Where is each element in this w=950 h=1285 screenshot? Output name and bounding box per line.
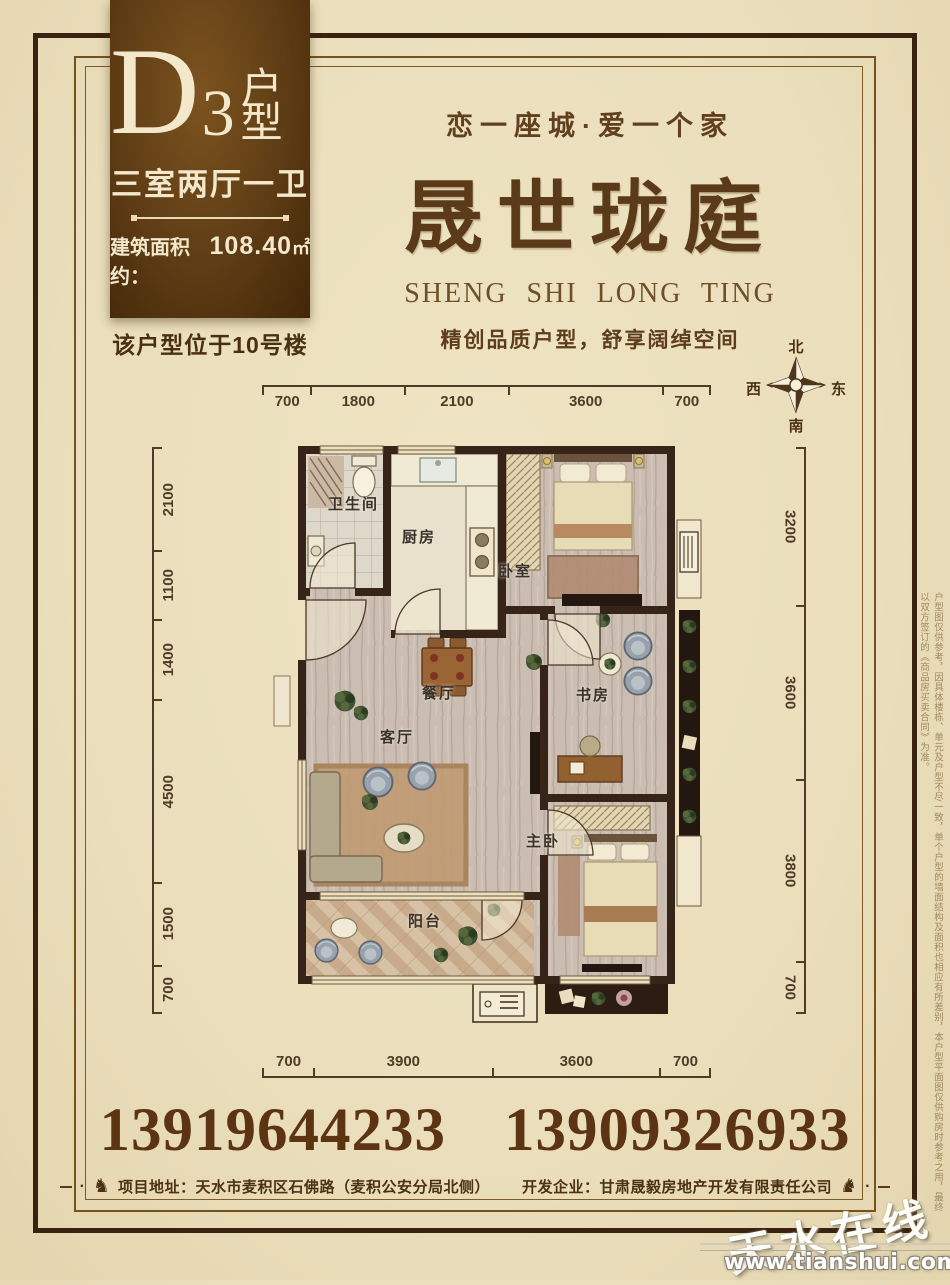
dimension-value: 1400 xyxy=(160,643,177,676)
dimension-value: 700 xyxy=(160,977,177,1002)
dimension-value: 1500 xyxy=(160,907,177,940)
dimension-segment: 3600 xyxy=(776,606,804,780)
brand-name: 晟世珑庭 xyxy=(350,153,830,268)
dimension-segment: 2100 xyxy=(405,387,509,415)
dimension-segment: 1800 xyxy=(311,387,405,415)
unit-type-card: D 3 户型 三室两厅一卫 建筑面积约： 108.40 ㎡ xyxy=(110,0,310,318)
room-label-bedroom: 卧室 xyxy=(498,560,532,581)
footer-left-dot: · xyxy=(80,1178,85,1196)
dimension-segment: 4500 xyxy=(154,700,182,883)
unit-area-unit: ㎡ xyxy=(292,234,310,260)
side-disclaimer: 户型图仅供参考，因具体楼栋、单元及户型不尽一致，单个户型的墙面结构及面积也相应有… xyxy=(916,592,944,1212)
brand-block: 恋一座城·爱一个家 晟世珑庭 SHENG SHI LONG TING 精创品质户… xyxy=(350,104,830,354)
dimension-segment: 1500 xyxy=(154,883,182,966)
developer-label: 开发企业： xyxy=(522,1179,600,1196)
dimension-value: 3600 xyxy=(569,393,602,410)
horse-ornament-right-icon: ♞ xyxy=(840,1177,857,1196)
brand-tagline: 恋一座城·爱一个家 xyxy=(350,104,830,143)
horse-ornament-left-icon: ♞ xyxy=(93,1177,110,1196)
unit-area-label: 建筑面积约： xyxy=(110,231,210,289)
dimension-row-bottom: 70039003600700 xyxy=(263,1048,711,1078)
room-label-dining: 餐厅 xyxy=(422,682,456,703)
address-label: 项目地址： xyxy=(118,1179,196,1196)
footer-right-rule xyxy=(878,1186,890,1188)
unit-type-suffix: 户型 xyxy=(241,72,310,139)
dimension-segment: 700 xyxy=(263,1048,314,1076)
compass-west-label: 西 xyxy=(746,378,761,399)
dimension-segment: 2100 xyxy=(154,448,182,551)
dimension-value: 2100 xyxy=(440,393,473,410)
phone-number-1: 13919644233 xyxy=(100,1096,447,1166)
dimension-value: 3900 xyxy=(387,1053,420,1070)
unit-card-divider xyxy=(131,217,289,219)
dimension-row-top: 700180021003600700 xyxy=(263,385,711,415)
footer-text: 项目地址：天水市麦积区石佛路（麦积公安分局北侧）开发企业：甘肃晟毅房地产开发有限… xyxy=(118,1176,832,1197)
unit-area: 建筑面积约： 108.40 ㎡ xyxy=(110,231,310,289)
room-label-living: 客厅 xyxy=(380,726,414,747)
room-label-study: 书房 xyxy=(576,684,610,705)
footer-info: · ♞ 项目地址：天水市麦积区石佛路（麦积公安分局北侧）开发企业：甘肃晟毅房地产… xyxy=(60,1176,890,1197)
dimension-value: 3600 xyxy=(782,676,799,709)
dimension-segment: 3800 xyxy=(776,780,804,962)
compass-star-icon xyxy=(766,355,826,415)
dimension-value: 3200 xyxy=(782,510,799,543)
dimension-segment: 700 xyxy=(663,387,711,415)
dimension-value: 700 xyxy=(674,393,699,410)
unit-type-number: 3 xyxy=(202,88,235,141)
room-label-balcony: 阳台 xyxy=(408,910,442,931)
floor-plan: 卫生间 厨房 卧室 餐厅 书房 客厅 主卧 阳台 xyxy=(252,436,702,1036)
brand-name-en: SHENG SHI LONG TING xyxy=(350,278,830,310)
unit-type-letter: D xyxy=(110,42,200,141)
dimension-value: 700 xyxy=(275,393,300,410)
developer-value: 甘肃晟毅房地产开发有限责任公司 xyxy=(600,1179,833,1196)
contact-phones: 13919644233 13909326933 xyxy=(60,1096,890,1166)
dimension-value: 700 xyxy=(673,1053,698,1070)
room-label-kitchen: 厨房 xyxy=(402,526,436,547)
compass-north-label: 北 xyxy=(744,336,848,357)
building-location-note: 该户型位于10号楼 xyxy=(100,326,320,360)
dimension-segment: 700 xyxy=(263,387,311,415)
dimension-value: 700 xyxy=(276,1053,301,1070)
compass-south-label: 南 xyxy=(744,415,848,436)
phone-number-2: 13909326933 xyxy=(504,1096,851,1166)
dimension-value: 3600 xyxy=(560,1053,593,1070)
dimension-segment: 3200 xyxy=(776,448,804,606)
dimension-value: 1800 xyxy=(342,393,375,410)
dimension-segment: 700 xyxy=(776,962,804,1014)
unit-area-value: 108.40 xyxy=(210,232,292,261)
dimension-value: 4500 xyxy=(160,775,177,808)
watermark-site-url: www.tianshui.com.cn xyxy=(724,1250,950,1275)
dimension-value: 700 xyxy=(782,975,799,1000)
dimension-column-left: 21001100140045001500700 xyxy=(152,448,182,1014)
dimension-segment: 700 xyxy=(660,1048,711,1076)
dimension-column-right: 320036003800700 xyxy=(776,448,806,1014)
address-value: 天水市麦积区石佛路（麦积公安分局北侧） xyxy=(195,1179,490,1196)
floor-plan-drawing xyxy=(252,436,702,1036)
unit-type-title: D 3 户型 xyxy=(110,42,310,141)
dimension-value: 1100 xyxy=(160,569,177,602)
compass-rose: 北 南 西 东 xyxy=(744,336,848,436)
dimension-segment: 700 xyxy=(154,966,182,1014)
dimension-value: 2100 xyxy=(160,483,177,516)
dimension-segment: 3600 xyxy=(509,387,663,415)
dimension-segment: 3900 xyxy=(314,1048,493,1076)
dimension-segment: 1100 xyxy=(154,551,182,620)
room-label-master: 主卧 xyxy=(526,830,560,851)
footer-left-rule xyxy=(60,1186,72,1188)
dimension-value: 3800 xyxy=(782,854,799,887)
dimension-segment: 3600 xyxy=(493,1048,660,1076)
unit-layout: 三室两厅一卫 xyxy=(111,159,309,204)
room-label-bathroom: 卫生间 xyxy=(328,493,379,514)
dimension-segment: 1400 xyxy=(154,620,182,700)
compass-east-label: 东 xyxy=(831,378,846,399)
